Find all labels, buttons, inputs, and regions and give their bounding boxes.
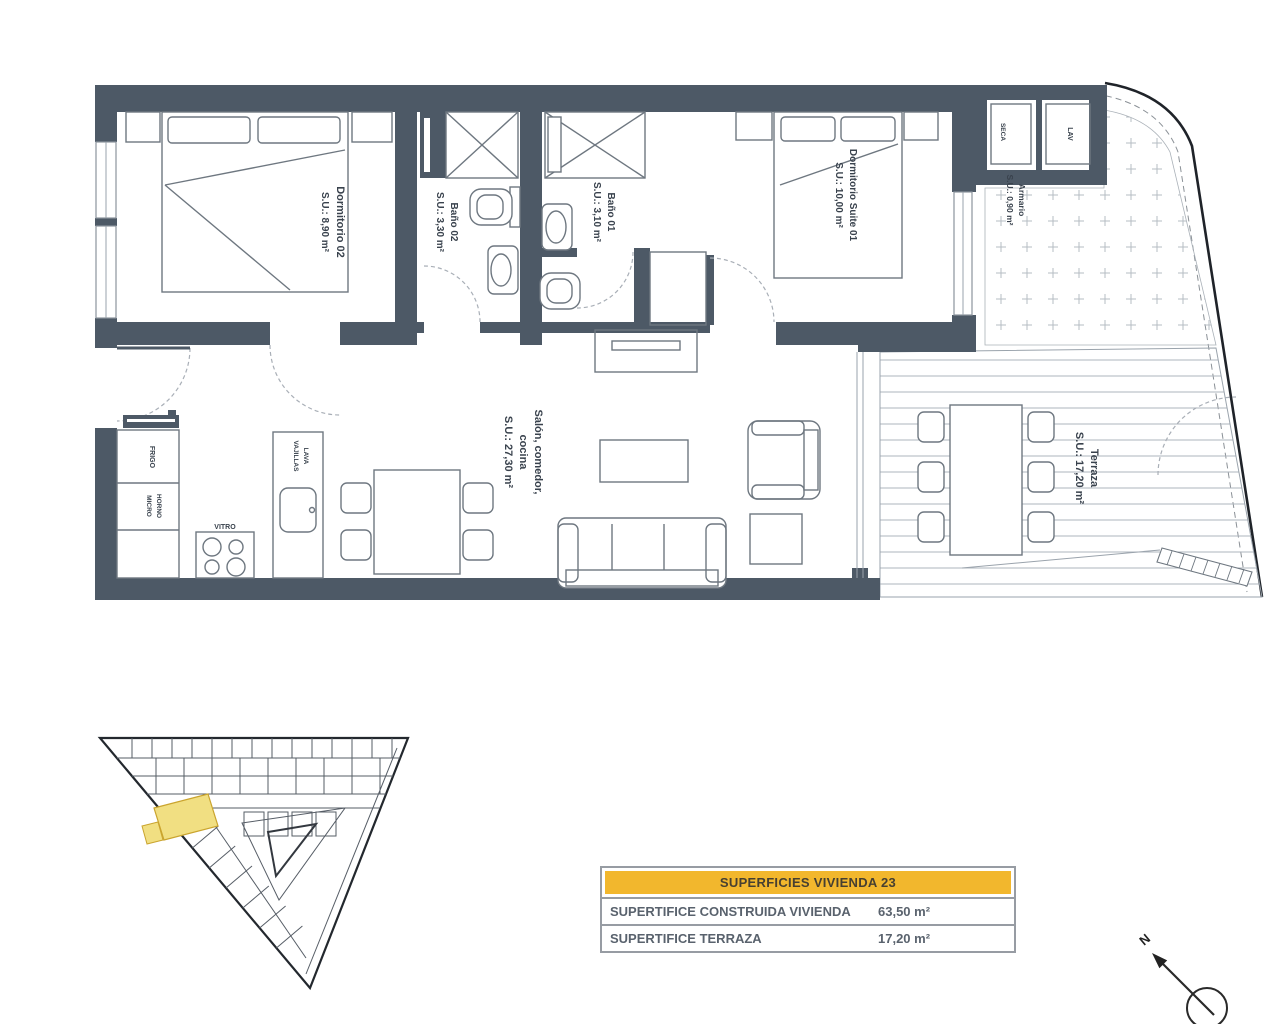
dishwasher-island: LAVA VAJILLAS — [273, 432, 323, 578]
room-label-salon-line2: cocina — [517, 435, 529, 471]
lav-label: LAV — [1066, 127, 1073, 141]
row-label: SUPERTIFICE TERRAZA — [610, 931, 878, 946]
room-label-dormitorio-02: Dormitorio 02 — [334, 186, 346, 258]
room-area-dormitorio-02: S.U.: 8,90 m² — [319, 192, 330, 253]
bed-dormitorio-02 — [126, 112, 392, 292]
nightstand — [126, 112, 160, 142]
entrance-door-arc — [117, 348, 190, 421]
north-compass: N — [1120, 930, 1280, 1024]
door-arc — [577, 252, 633, 308]
vitro-label: VITRO — [214, 524, 236, 531]
tv-cabinet — [595, 330, 697, 372]
room-label-armario: Armario — [1017, 184, 1027, 217]
room-area-suite-01: S.U.: 10,00 m² — [833, 162, 844, 228]
table-row: SUPERTIFICE CONSTRUIDA VIVIENDA 63,50 m² — [602, 897, 1014, 924]
north-label: N — [1136, 931, 1153, 949]
kitchen-sink-icon — [280, 488, 316, 532]
room-area-bano-01: S.U.: 3,10 m² — [591, 182, 602, 243]
room-area-armario: S.U.: 0,90 m² — [1005, 174, 1015, 225]
vajillas-label: VAJILLAS — [292, 441, 299, 473]
fridge-label: FRIGO — [148, 446, 155, 469]
room-area-bano-02: S.U.: 3,30 m² — [434, 192, 445, 253]
armchair — [748, 421, 820, 499]
door-arc-dormitorio-02 — [270, 345, 340, 415]
chair — [1028, 512, 1054, 542]
chair — [341, 483, 371, 513]
oven-label: HORNO — [155, 494, 162, 518]
chair — [341, 530, 371, 560]
nightstand — [736, 112, 772, 140]
hob-icon: VITRO — [196, 524, 254, 578]
summary-table: SUPERFICIES VIVIENDA 23 SUPERTIFICE CONS… — [600, 866, 1016, 953]
sofa — [558, 518, 726, 588]
table-row: SUPERTIFICE TERRAZA 17,20 m² — [602, 924, 1014, 951]
laundry-closet: SECA LAV — [971, 85, 1107, 185]
summary-table-header: SUPERFICIES VIVIENDA 23 — [605, 871, 1011, 894]
chair — [918, 512, 944, 542]
row-value: 17,20 m² — [878, 931, 1006, 946]
floor-plan: SECA LAV — [0, 0, 1280, 700]
site-plan — [92, 728, 417, 996]
lava-label: LAVA — [302, 448, 309, 465]
nightstand — [904, 112, 938, 140]
room-label-salon-line1: Salón, comedor, — [532, 410, 544, 495]
room-area-salon: S.U.: 27,30 m² — [502, 416, 514, 488]
room-label-bano-02: Baño 02 — [448, 203, 459, 242]
suite-door-arc — [710, 258, 774, 322]
seca-label: SECA — [999, 123, 1006, 141]
coffee-table — [600, 440, 688, 482]
outdoor-dining-table — [918, 405, 1054, 555]
chair — [918, 412, 944, 442]
chair — [918, 462, 944, 492]
room-label-suite-01: Dormitorio Suite 01 — [847, 149, 858, 242]
side-table — [750, 514, 802, 564]
room-label-bano-01: Baño 01 — [605, 193, 616, 232]
sink-icon — [488, 246, 518, 294]
chair — [1028, 462, 1054, 492]
kitchen-counter: FRIGO HORNO MICRO VITRO LAVA VAJILLAS — [117, 410, 323, 578]
floor-plan-page: SECA LAV — [0, 0, 1280, 1024]
chair — [463, 483, 493, 513]
nightstand — [352, 112, 392, 142]
door-arc — [424, 266, 480, 322]
hall-closet — [650, 252, 706, 325]
room-label-terraza: Terraza — [1088, 449, 1100, 488]
shower-partition — [420, 112, 446, 178]
chair — [1028, 412, 1054, 442]
row-value: 63,50 m² — [878, 904, 1006, 919]
north-arrow-icon — [1152, 953, 1227, 1024]
dining-table — [341, 470, 493, 574]
room-area-terraza: S.U.: 17,20 m² — [1073, 432, 1085, 504]
chair — [463, 530, 493, 560]
micro-label: MICRO — [145, 495, 152, 517]
row-label: SUPERTIFICE CONSTRUIDA VIVIENDA — [610, 904, 878, 919]
